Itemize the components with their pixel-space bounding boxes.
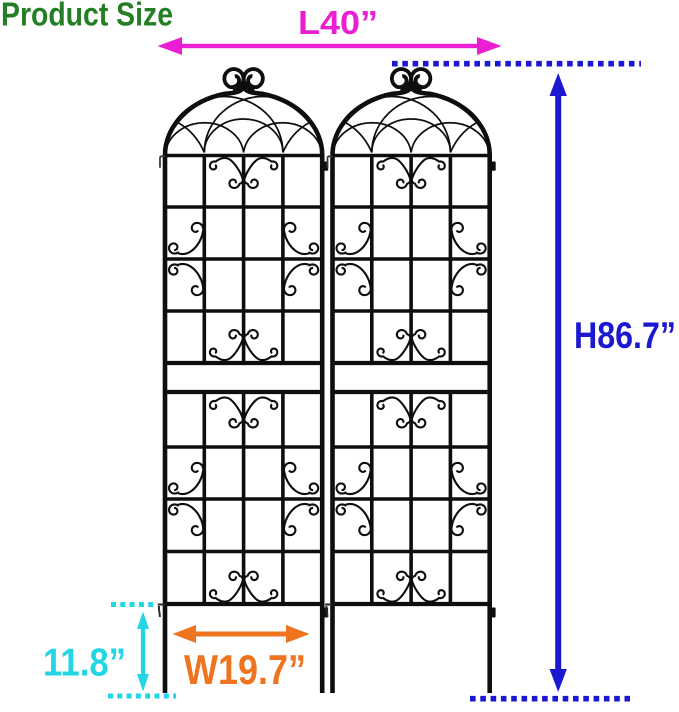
svg-text:W19.7”: W19.7” [184,646,306,693]
svg-text:11.8”: 11.8” [43,642,126,685]
svg-text:H86.7”: H86.7” [574,314,676,356]
svg-text:L40”: L40” [298,4,378,41]
svg-text:Product Size: Product Size [1,0,173,33]
